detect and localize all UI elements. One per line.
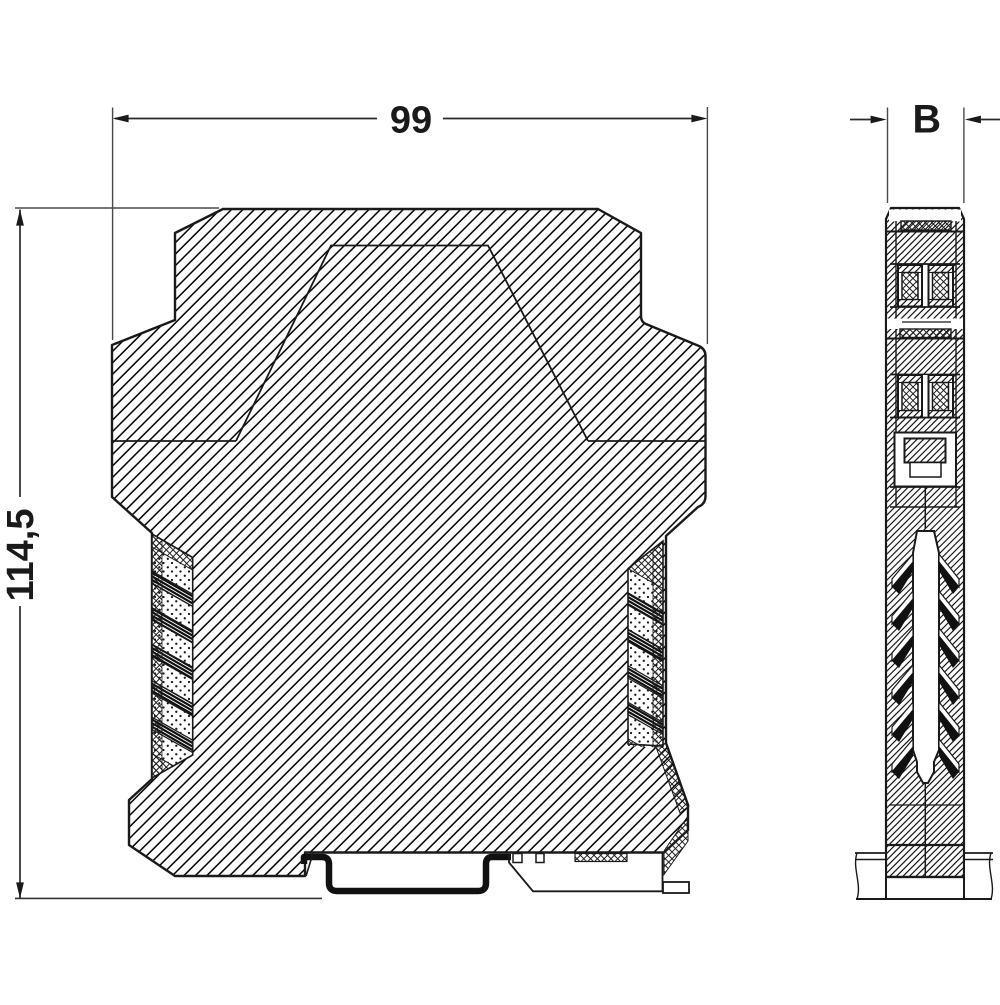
svg-text:B: B	[913, 98, 942, 142]
svg-text:114,5: 114,5	[0, 509, 42, 602]
svg-text:99: 99	[390, 99, 432, 141]
